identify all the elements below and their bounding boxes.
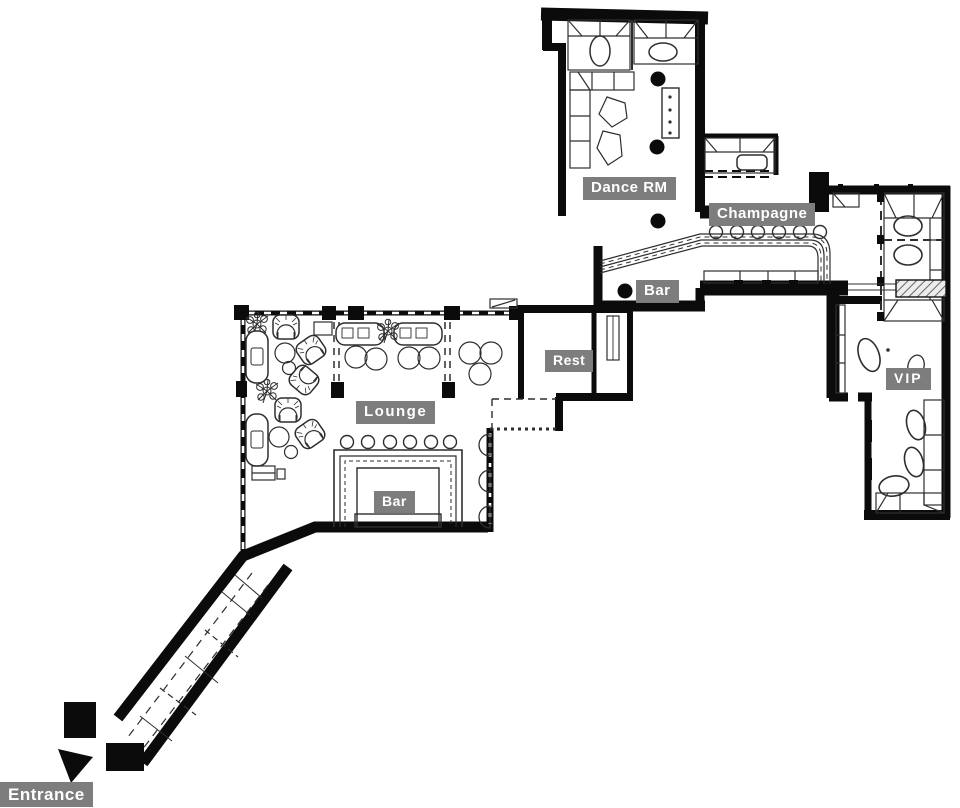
room-label-lounge: Lounge bbox=[356, 401, 435, 424]
room-label-bar-lounge: Bar bbox=[374, 491, 415, 513]
entrance-arrow-icon bbox=[58, 749, 93, 783]
walls bbox=[64, 9, 950, 771]
champagne-room-furniture bbox=[705, 138, 859, 207]
lounge-furniture bbox=[246, 312, 502, 480]
upper-bar-counter bbox=[600, 226, 830, 285]
entrance-corridor bbox=[128, 573, 268, 750]
room-label-rest: Rest bbox=[545, 350, 593, 372]
lounge-bar-counter bbox=[334, 434, 490, 528]
room-label-bar-upper: Bar bbox=[636, 280, 679, 303]
floor-plan-page: Dance RM Champagne Bar Rest Lounge Bar V… bbox=[0, 0, 960, 808]
room-label-vip: VIP bbox=[886, 368, 931, 390]
vip-area-furniture bbox=[836, 305, 944, 513]
room-label-entrance: Entrance bbox=[0, 782, 93, 807]
room-label-champagne: Champagne bbox=[709, 203, 815, 226]
dance-room-furniture bbox=[568, 20, 698, 168]
floorplan-drawing bbox=[0, 0, 960, 808]
room-label-dance-rm: Dance RM bbox=[583, 177, 676, 200]
